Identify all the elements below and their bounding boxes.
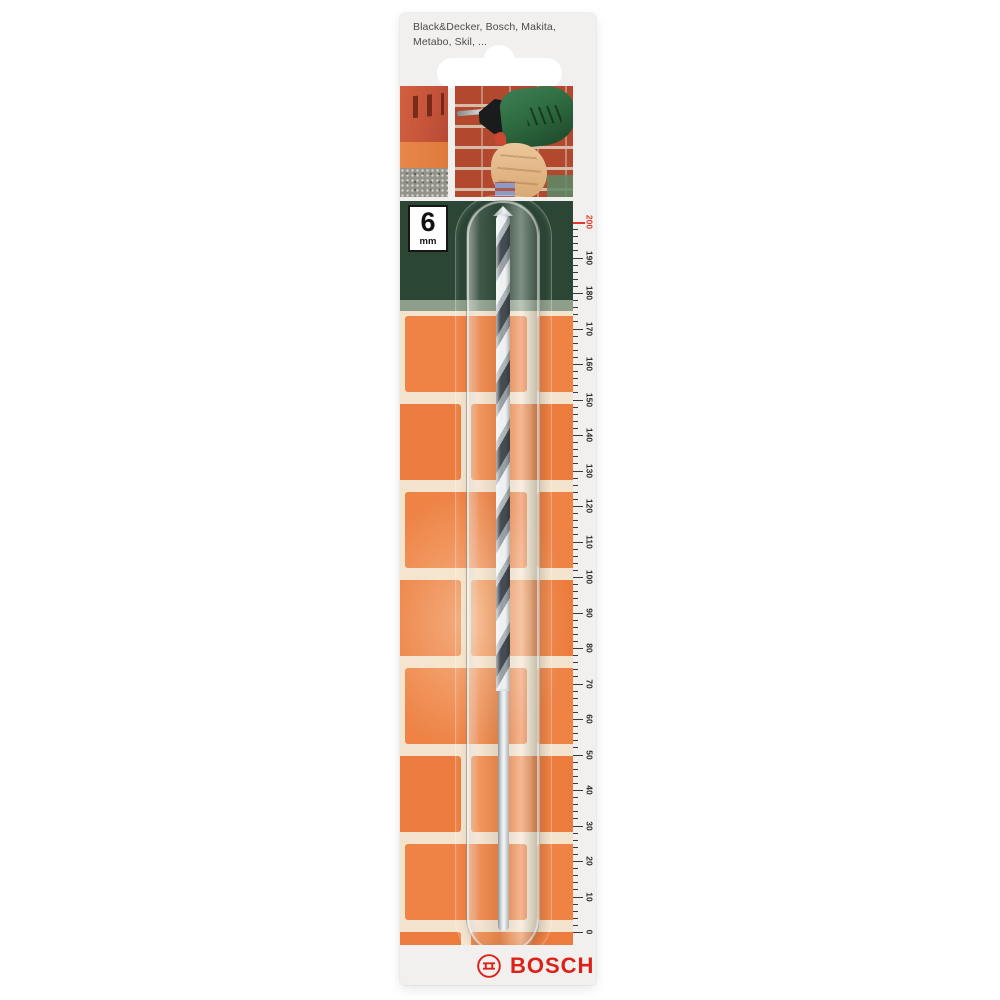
ruler-tick xyxy=(573,826,583,827)
ruler-tick xyxy=(573,407,578,408)
ruler-label: 190 xyxy=(585,250,594,264)
bosch-logo: BOSCH xyxy=(476,953,594,979)
ruler-label: 170 xyxy=(585,321,594,335)
ruler-tick xyxy=(573,307,578,308)
ruler: 0102030405060708090100110120130140150160… xyxy=(573,13,596,985)
drill-in-use-photo xyxy=(455,86,573,197)
drill-bit-shank xyxy=(498,691,509,931)
ruler-tick xyxy=(573,329,583,330)
ruler-tick xyxy=(573,712,578,713)
ruler-tick xyxy=(573,925,578,926)
ruler-label: 120 xyxy=(585,499,594,513)
ruler-label: 0 xyxy=(585,930,594,935)
ruler-tick xyxy=(573,797,578,798)
ruler-tick xyxy=(573,414,578,415)
ruler-label: 140 xyxy=(585,428,594,442)
ruler-tick xyxy=(573,932,583,933)
ruler-tick xyxy=(573,400,583,401)
ruler-tick xyxy=(573,279,578,280)
ruler-tick xyxy=(573,698,578,699)
ruler-tick xyxy=(573,435,583,436)
drill-vents xyxy=(526,105,562,126)
ruler-tick xyxy=(573,563,578,564)
ruler-tick xyxy=(573,769,578,770)
ruler-tick xyxy=(573,542,583,543)
ruler-tick xyxy=(573,840,578,841)
ruler-tick xyxy=(573,776,578,777)
ruler-tick xyxy=(573,343,578,344)
blister-pack xyxy=(466,200,540,954)
ruler-tick xyxy=(573,648,583,649)
ruler-tick xyxy=(573,811,578,812)
packaging-card: Black&Decker, Bosch, Makita, Metabo, Ski… xyxy=(400,13,596,985)
ruler-tick xyxy=(573,676,578,677)
ruler-label: 160 xyxy=(585,357,594,371)
ruler-tick xyxy=(573,904,578,905)
bosch-armature-icon xyxy=(476,953,502,979)
ruler-tick xyxy=(573,627,578,628)
ruler-tick xyxy=(573,556,578,557)
ruler-tick xyxy=(573,478,578,479)
ruler-tick xyxy=(573,286,578,287)
ruler-tick xyxy=(573,456,578,457)
ruler-tick xyxy=(573,570,578,571)
ruler-tick xyxy=(573,385,578,386)
ruler-tick xyxy=(573,364,583,365)
ruler-tick xyxy=(573,463,578,464)
ruler-label: 130 xyxy=(585,463,594,477)
ruler-tick xyxy=(573,705,578,706)
ruler-label: 30 xyxy=(585,821,594,830)
ruler-tick xyxy=(573,755,583,756)
ruler-tick xyxy=(573,847,578,848)
bosch-logo-text: BOSCH xyxy=(510,955,594,977)
ruler-tick xyxy=(573,740,578,741)
ruler-tick xyxy=(573,861,583,862)
ruler-tick xyxy=(573,577,583,578)
ruler-tick xyxy=(573,854,578,855)
ruler-tick xyxy=(573,882,578,883)
ruler-tick xyxy=(573,733,578,734)
ruler-tick xyxy=(573,321,578,322)
ruler-tick xyxy=(573,875,578,876)
solid-brick-block xyxy=(400,142,448,168)
ruler-tick xyxy=(573,790,583,791)
ruler-tick xyxy=(573,314,578,315)
ruler-tick xyxy=(573,747,578,748)
ruler-label: 60 xyxy=(585,714,594,723)
size-unit: mm xyxy=(410,236,446,247)
ruler-tick xyxy=(573,520,578,521)
ruler-tick xyxy=(573,293,583,294)
ruler-tick xyxy=(573,336,578,337)
ruler-tick xyxy=(573,549,578,550)
size-value: 6 xyxy=(410,209,446,236)
ruler-tick xyxy=(573,527,578,528)
ruler-tick xyxy=(573,499,578,500)
ruler-tick xyxy=(573,783,578,784)
ruler-tick xyxy=(573,889,578,890)
ruler-label: 200 xyxy=(585,215,594,229)
ruler-tick xyxy=(573,591,578,592)
ruler-tick xyxy=(573,669,578,670)
ruler-tick xyxy=(573,243,578,244)
ruler-tick xyxy=(573,868,578,869)
ruler-tick xyxy=(573,605,578,606)
ruler-label: 70 xyxy=(585,679,594,688)
ruler-tick xyxy=(573,506,583,507)
ruler-tick xyxy=(573,300,578,301)
ruler-tick xyxy=(573,911,578,912)
ruler-tick xyxy=(573,804,578,805)
ruler-tick xyxy=(573,471,583,472)
ruler-label: 50 xyxy=(585,750,594,759)
drill-bit-flutes xyxy=(496,214,510,691)
ruler-tick xyxy=(573,762,578,763)
ruler-tick xyxy=(573,357,578,358)
ruler-tick xyxy=(573,620,578,621)
ruler-tick xyxy=(573,492,578,493)
ruler-label: 100 xyxy=(585,570,594,584)
ruler-tick xyxy=(573,818,578,819)
ruler-tick xyxy=(573,833,578,834)
ruler-label: 20 xyxy=(585,856,594,865)
ruler-tick xyxy=(573,613,583,614)
ruler-tick xyxy=(573,272,578,273)
ruler-tick xyxy=(573,662,578,663)
photo-corner-highlight xyxy=(547,175,573,197)
ruler-tick xyxy=(573,449,578,450)
ruler-tick xyxy=(573,918,578,919)
ruler-tick xyxy=(573,258,583,259)
ruler-tick xyxy=(573,598,578,599)
ruler-label: 40 xyxy=(585,785,594,794)
brick-holes xyxy=(404,93,444,119)
ruler-tick xyxy=(573,250,578,251)
ruler-tick xyxy=(573,485,578,486)
ruler-tick xyxy=(573,691,578,692)
ruler-label: 10 xyxy=(585,892,594,901)
ruler-tick xyxy=(573,378,578,379)
ruler-tick xyxy=(573,584,578,585)
ruler-tick xyxy=(573,726,578,727)
ruler-label: 80 xyxy=(585,643,594,652)
ruler-label: 90 xyxy=(585,608,594,617)
concrete-block xyxy=(400,168,448,197)
ruler-tick xyxy=(573,428,578,429)
ruler-tick xyxy=(573,534,578,535)
ruler-tick xyxy=(573,350,578,351)
ruler-tick xyxy=(573,634,578,635)
ruler-tick xyxy=(573,392,578,393)
ruler-tick xyxy=(573,655,578,656)
ruler-tick xyxy=(573,229,578,230)
ruler-tick xyxy=(573,371,578,372)
bottom-brand-area: BOSCH xyxy=(400,945,596,985)
materials-cross-section-photo xyxy=(400,86,448,197)
ruler-tick xyxy=(573,265,578,266)
ruler-tick xyxy=(573,897,583,898)
ruler-label: 150 xyxy=(585,392,594,406)
ruler-tick xyxy=(573,222,585,224)
product-photo: Black&Decker, Bosch, Makita, Metabo, Ski… xyxy=(0,0,1000,1000)
ruler-tick xyxy=(573,719,583,720)
size-badge: 6 mm xyxy=(408,205,448,252)
ruler-tick xyxy=(573,513,578,514)
ruler-tick xyxy=(573,641,578,642)
ruler-tick xyxy=(573,421,578,422)
ruler-label: 110 xyxy=(585,535,594,549)
ruler-label: 180 xyxy=(585,286,594,300)
ruler-tick xyxy=(573,684,583,685)
ruler-tick xyxy=(573,442,578,443)
ruler-tick xyxy=(573,236,578,237)
